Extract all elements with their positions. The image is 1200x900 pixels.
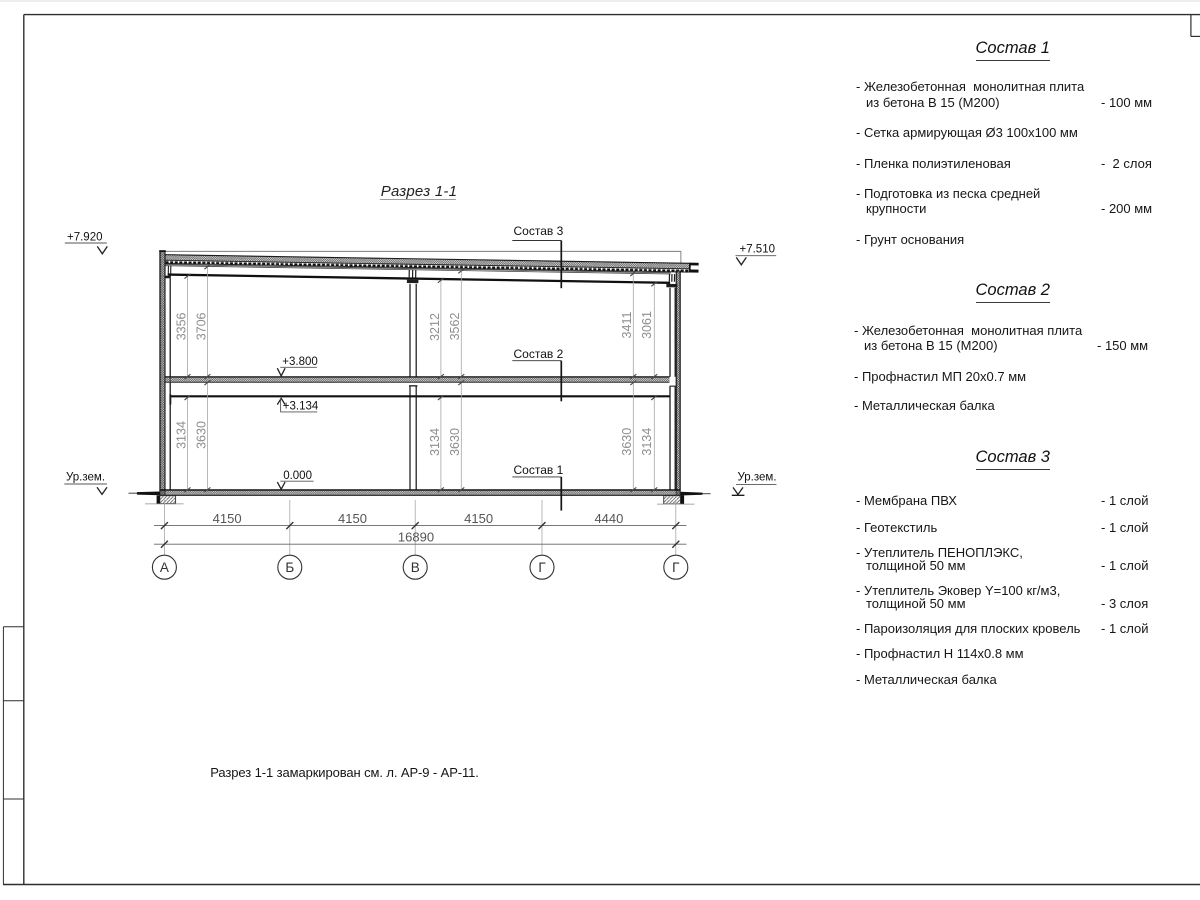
svg-text:16890: 16890	[398, 530, 434, 545]
svg-text:В: В	[411, 560, 420, 575]
svg-text:3134: 3134	[428, 428, 442, 456]
svg-text:4150: 4150	[213, 511, 242, 526]
svg-text:+7.920: +7.920	[67, 231, 103, 243]
svg-text:3630: 3630	[448, 428, 462, 456]
svg-text:3630: 3630	[620, 428, 634, 456]
svg-text:А: А	[160, 560, 169, 575]
svg-text:3134: 3134	[640, 428, 654, 456]
svg-text:4440: 4440	[594, 511, 623, 526]
svg-text:Состав 1: Состав 1	[514, 463, 564, 477]
svg-text:Состав 2: Состав 2	[514, 347, 564, 361]
svg-text:+7.510: +7.510	[740, 244, 776, 256]
svg-text:Г: Г	[538, 560, 546, 575]
svg-text:3356: 3356	[174, 312, 188, 340]
svg-text:3706: 3706	[194, 312, 208, 340]
svg-text:Г: Г	[672, 560, 680, 575]
svg-text:3212: 3212	[428, 313, 442, 341]
svg-text:4150: 4150	[338, 511, 367, 526]
svg-text:Ур.зем.: Ур.зем.	[66, 472, 105, 484]
svg-text:Разрез 1-1 замаркирован см. л.: Разрез 1-1 замаркирован см. л. АР-9 - АР…	[210, 765, 479, 780]
svg-text:Состав 3: Состав 3	[514, 224, 564, 238]
svg-text:+3.134: +3.134	[283, 401, 319, 413]
svg-text:3630: 3630	[194, 421, 208, 449]
svg-text:Б: Б	[285, 560, 294, 575]
svg-text:Ур.зем.: Ур.зем.	[738, 472, 777, 484]
svg-text:3411: 3411	[620, 312, 634, 339]
svg-text:Разрез 1-1: Разрез 1-1	[381, 183, 457, 200]
svg-text:0.000: 0.000	[283, 470, 312, 482]
svg-text:3061: 3061	[640, 311, 654, 339]
svg-text:3134: 3134	[174, 421, 188, 449]
svg-text:+3.800: +3.800	[282, 356, 318, 368]
svg-text:4150: 4150	[464, 511, 493, 526]
svg-text:3562: 3562	[448, 313, 462, 341]
